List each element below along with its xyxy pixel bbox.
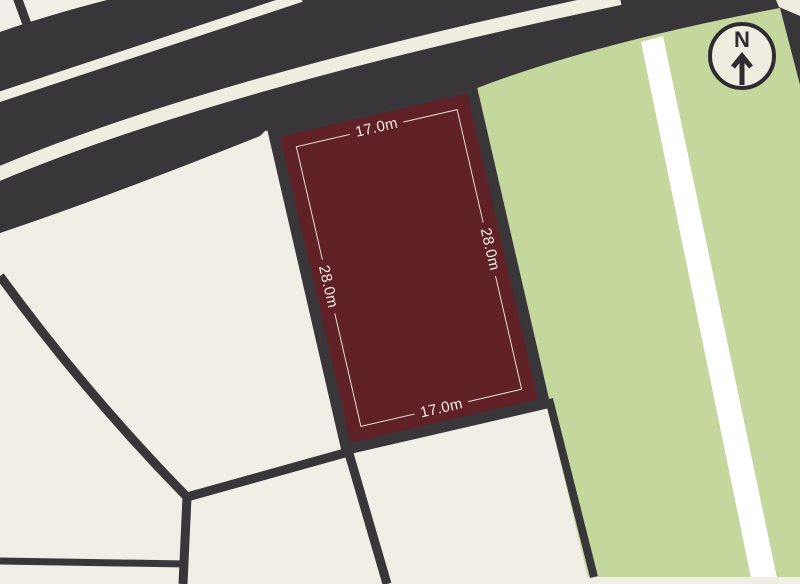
- boundary-line-south: [183, 497, 187, 584]
- lot-map-canvas: 17.0m 28.0m 28.0m 17.0m N: [0, 0, 800, 584]
- compass: N: [708, 22, 776, 90]
- bottom-edge-strip: [520, 577, 800, 584]
- north-arrow-icon: [730, 51, 754, 87]
- boundary-line-west: [0, 561, 186, 564]
- compass-north-label: N: [734, 29, 750, 51]
